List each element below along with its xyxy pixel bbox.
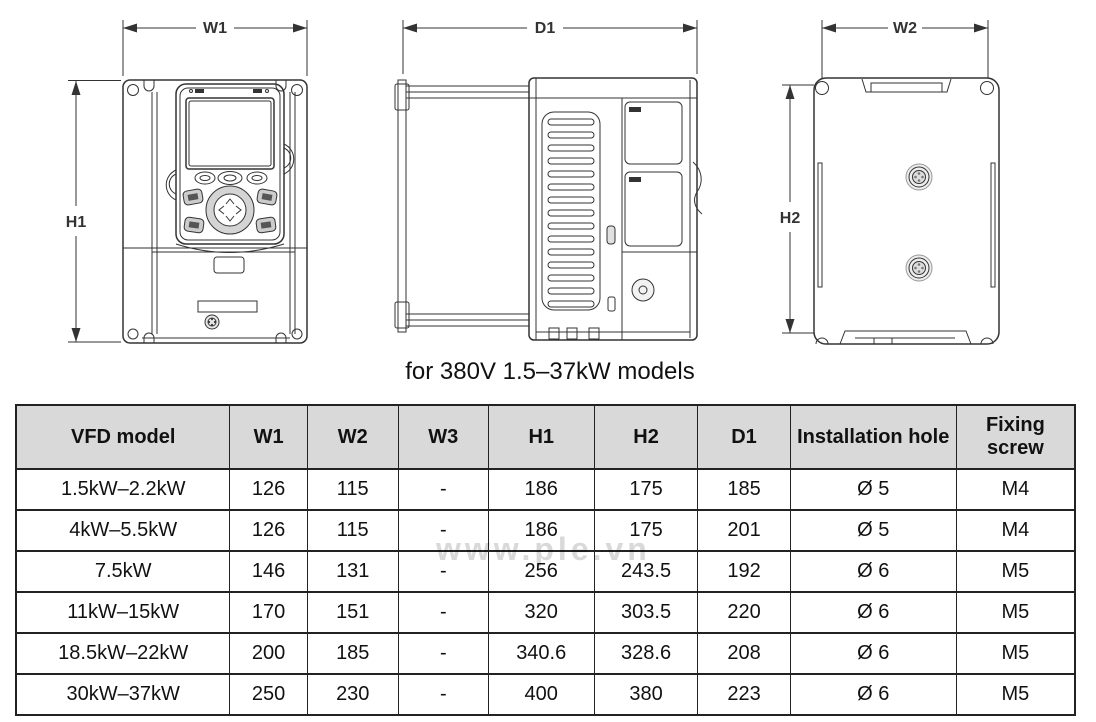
h1-dimension: H1: [66, 81, 121, 343]
table-cell: 7.5kW: [16, 551, 230, 592]
screw-icon: [632, 279, 654, 301]
vfd-back-body: [814, 78, 999, 344]
table-cell: 186: [488, 469, 594, 510]
dim-label-w2: W2: [893, 20, 917, 37]
table-body: 1.5kW–2.2kW126115-186175185Ø 5M44kW–5.5k…: [16, 469, 1075, 715]
dim-label-d1: D1: [535, 20, 556, 37]
table-cell: M5: [956, 551, 1075, 592]
table-cell: 175: [594, 469, 698, 510]
table-cell: -: [398, 674, 488, 715]
h2-dimension: H2: [780, 85, 814, 333]
table-cell: Ø 5: [790, 510, 956, 551]
table-cell: 208: [698, 633, 790, 674]
front-view-drawing: W1 H1: [66, 20, 307, 343]
table-cell: 200: [230, 633, 307, 674]
page: W1 H1: [0, 0, 1096, 722]
table-cell: -: [398, 592, 488, 633]
mounting-hole-icon: [816, 82, 829, 95]
navigation-dial: [206, 186, 254, 234]
table-cell: 250: [230, 674, 307, 715]
table-cell: 115: [307, 510, 398, 551]
table-row: 18.5kW–22kW200185-340.6328.6208Ø 6M5: [16, 633, 1075, 674]
screw-icon: [906, 164, 932, 190]
table-cell: M5: [956, 633, 1075, 674]
table-row: 1.5kW–2.2kW126115-186175185Ø 5M4: [16, 469, 1075, 510]
back-view-drawing: W2 H2: [780, 20, 999, 344]
table-cell: 1.5kW–2.2kW: [16, 469, 230, 510]
table-cell: -: [398, 469, 488, 510]
table-cell: 380: [594, 674, 698, 715]
table-cell: 30kW–37kW: [16, 674, 230, 715]
table-cell: 320: [488, 592, 594, 633]
column-header: H2: [594, 405, 698, 469]
table-cell: 185: [307, 633, 398, 674]
table-cell: 4kW–5.5kW: [16, 510, 230, 551]
table-cell: 328.6: [594, 633, 698, 674]
lcd-display: [186, 98, 274, 169]
column-header: H1: [488, 405, 594, 469]
column-header: W2: [307, 405, 398, 469]
w2-dimension: W2: [822, 20, 988, 78]
dim-label-h2: H2: [780, 210, 801, 227]
table-cell: 18.5kW–22kW: [16, 633, 230, 674]
screw-icon: [205, 315, 219, 329]
table-cell: 170: [230, 592, 307, 633]
table-cell: 115: [307, 469, 398, 510]
table-cell: 11kW–15kW: [16, 592, 230, 633]
table-cell: 220: [698, 592, 790, 633]
table-cell: M4: [956, 510, 1075, 551]
table-cell: 146: [230, 551, 307, 592]
table-cell: 151: [307, 592, 398, 633]
table-cell: 340.6: [488, 633, 594, 674]
mounting-plate: [395, 80, 529, 332]
column-header: Fixing screw: [956, 405, 1075, 469]
dim-label-w1: W1: [203, 20, 227, 37]
table-cell: M5: [956, 674, 1075, 715]
table-cell: Ø 6: [790, 551, 956, 592]
back-screws: [906, 164, 932, 281]
table-cell: 131: [307, 551, 398, 592]
dimension-drawings: W1 H1: [0, 0, 1096, 400]
terminal-covers: [607, 102, 682, 311]
table-cell: 126: [230, 469, 307, 510]
column-header: D1: [698, 405, 790, 469]
led-icon: [190, 90, 193, 93]
w1-dimension: W1: [123, 20, 307, 76]
table-cell: 400: [488, 674, 594, 715]
table-row: 11kW–15kW170151-320303.5220Ø 6M5: [16, 592, 1075, 633]
table-cell: 223: [698, 674, 790, 715]
table-cell: -: [398, 633, 488, 674]
table-cell: Ø 6: [790, 592, 956, 633]
side-view-drawing: D1: [395, 20, 702, 340]
led-icon: [266, 90, 269, 93]
drawing-caption: for 380V 1.5–37kW models: [370, 358, 730, 386]
table-cell: 192: [698, 551, 790, 592]
column-header: Installation hole: [790, 405, 956, 469]
table-cell: Ø 5: [790, 469, 956, 510]
watermark: www.ple.vn: [436, 531, 696, 568]
header-row: VFD modelW1W2W3H1H2D1Installation holeFi…: [16, 405, 1075, 469]
dim-label-h1: H1: [66, 214, 87, 231]
table-cell: 185: [698, 469, 790, 510]
table-cell: M4: [956, 469, 1075, 510]
table-row: 30kW–37kW250230-400380223Ø 6M5: [16, 674, 1075, 715]
table-cell: 230: [307, 674, 398, 715]
column-header: W3: [398, 405, 488, 469]
screw-icon: [906, 255, 932, 281]
keypad: [166, 84, 294, 253]
vent-grille: [542, 112, 600, 310]
table-cell: 126: [230, 510, 307, 551]
table-cell: 303.5: [594, 592, 698, 633]
d1-dimension: D1: [403, 20, 697, 74]
mounting-hole-icon: [981, 82, 994, 95]
function-buttons: [195, 172, 267, 185]
front-lower-details: [198, 257, 257, 329]
table-cell: 201: [698, 510, 790, 551]
table-cell: Ø 6: [790, 674, 956, 715]
column-header: VFD model: [16, 405, 230, 469]
column-header: W1: [230, 405, 307, 469]
table-cell: Ø 6: [790, 633, 956, 674]
table-cell: M5: [956, 592, 1075, 633]
